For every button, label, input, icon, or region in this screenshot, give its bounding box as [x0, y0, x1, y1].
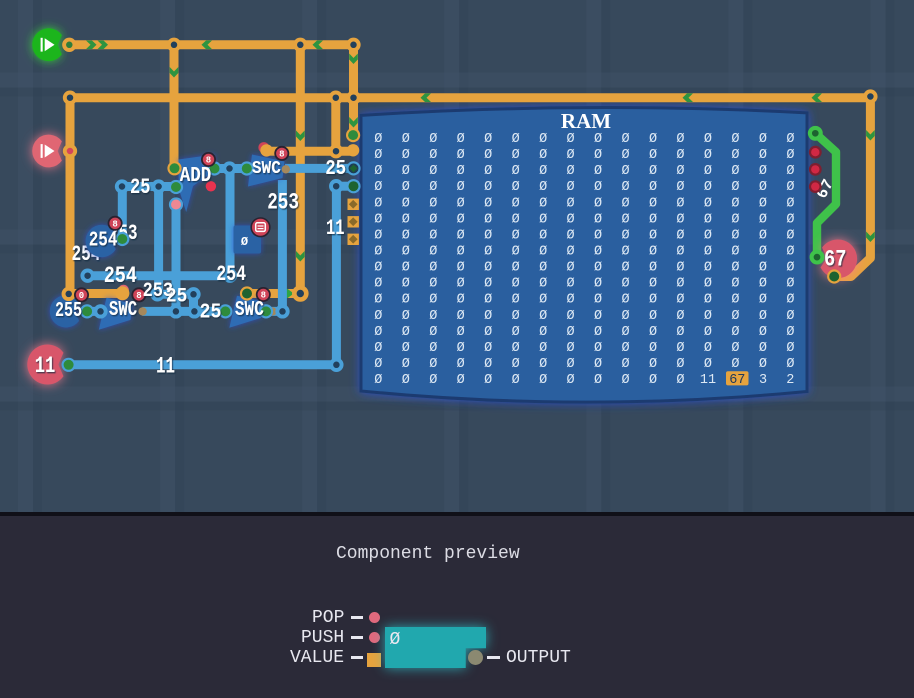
- svg-text:ØØØØØØØØØØØØØØØØ: ØØØØØØØØØØØØØØØØ: [374, 357, 814, 372]
- svg-text:ØØØØØØØØØØØØØØØØ: ØØØØØØØØØØØØØØØØ: [374, 180, 814, 195]
- svg-text:ØØØØØØØØØØØØØØØØ: ØØØØØØØØØØØØØØØØ: [374, 325, 814, 340]
- svg-text:11: 11: [700, 373, 716, 388]
- svg-text:ØØØØØØØØØØØØ: ØØØØØØØØØØØØ: [374, 373, 704, 388]
- svg-text:254: 254: [89, 229, 118, 252]
- svg-text:255: 255: [55, 300, 82, 323]
- svg-text:Ø: Ø: [241, 235, 248, 249]
- svg-text:25: 25: [166, 286, 187, 309]
- svg-text:SWC: SWC: [109, 299, 138, 322]
- svg-text:25: 25: [200, 301, 222, 324]
- svg-text:RAM: RAM: [561, 109, 611, 133]
- svg-text:ØØØØØØØØØØØØØØØØ: ØØØØØØØØØØØØØØØØ: [374, 212, 814, 227]
- svg-text:ØØØØØØØØØØØØØØØØ: ØØØØØØØØØØØØØØØØ: [374, 245, 814, 260]
- svg-text:67: 67: [729, 373, 745, 388]
- svg-text:ØØØØØØØØØØØØØØØØ: ØØØØØØØØØØØØØØØØ: [374, 341, 814, 356]
- svg-text:ØØØØØØØØØØØØØØØØ: ØØØØØØØØØØØØØØØØ: [374, 228, 814, 243]
- svg-text:11: 11: [35, 353, 56, 379]
- svg-text:2: 2: [786, 373, 794, 388]
- svg-text:ØØØØØØØØØØØØØØØØ: ØØØØØØØØØØØØØØØØ: [374, 309, 814, 324]
- svg-text:254: 254: [216, 262, 246, 287]
- svg-text:ØØØØØØØØØØØØØØØØ: ØØØØØØØØØØØØØØØØ: [374, 164, 814, 179]
- svg-text:3: 3: [759, 373, 767, 388]
- svg-text:11: 11: [326, 216, 345, 241]
- svg-text:ØØØØØØØØØØØØØØØØ: ØØØØØØØØØØØØØØØØ: [374, 148, 814, 163]
- svg-text:25: 25: [325, 158, 346, 181]
- svg-text:25: 25: [130, 175, 150, 200]
- svg-text:67: 67: [824, 247, 846, 273]
- svg-text:8: 8: [112, 220, 117, 230]
- svg-text:ØØØØØØØØØØØØØØØØ: ØØØØØØØØØØØØØØØØ: [374, 132, 814, 147]
- svg-text:SWC: SWC: [235, 299, 264, 322]
- svg-text:SWC: SWC: [252, 159, 281, 179]
- svg-text:ØØØØØØØØØØØØØØØØ: ØØØØØØØØØØØØØØØØ: [374, 277, 814, 292]
- svg-text:ADD: ADD: [180, 164, 212, 188]
- svg-text:ØØØØØØØØØØØØØØØØ: ØØØØØØØØØØØØØØØØ: [374, 261, 814, 276]
- svg-text:254: 254: [104, 263, 137, 289]
- svg-text:11: 11: [156, 354, 175, 380]
- svg-text:253: 253: [267, 189, 299, 215]
- svg-text:ØØØØØØØØØØØØØØØØ: ØØØØØØØØØØØØØØØØ: [374, 293, 814, 308]
- svg-text:ØØØØØØØØØØØØØØØØ: ØØØØØØØØØØØØØØØØ: [374, 196, 814, 211]
